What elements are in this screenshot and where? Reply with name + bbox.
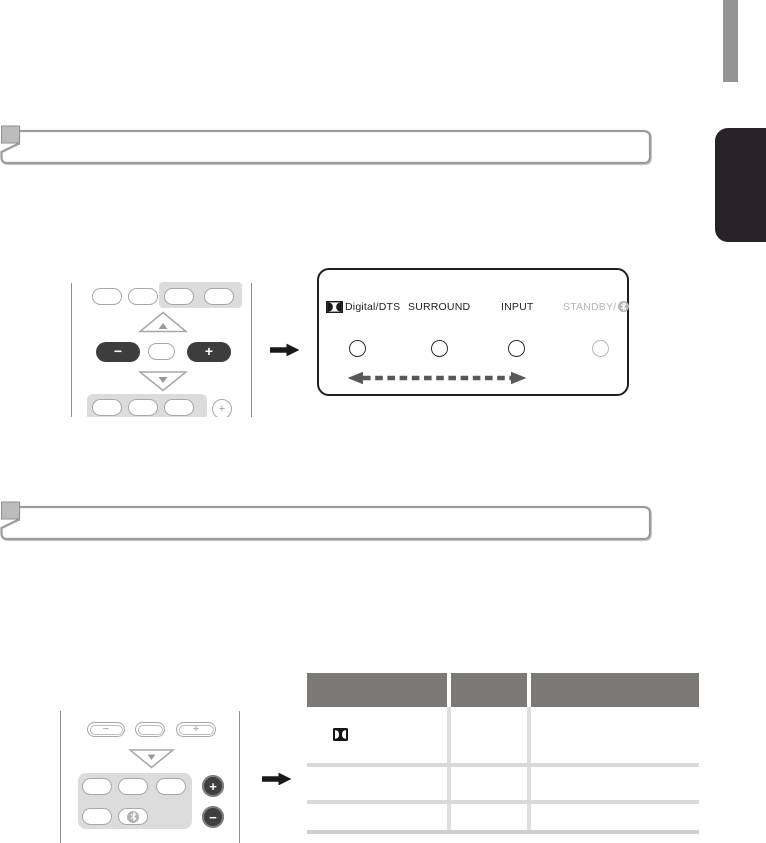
minus-label: − bbox=[114, 343, 122, 359]
down-arrow-button-icon bbox=[138, 371, 188, 392]
remote-left-edge bbox=[60, 711, 61, 843]
left-right-dashed-arrow-icon bbox=[347, 370, 527, 386]
remote-button bbox=[164, 399, 194, 416]
right-arrow-icon bbox=[270, 343, 300, 357]
bluetooth-icon bbox=[127, 811, 139, 823]
note-callout-banner-2 bbox=[0, 500, 654, 542]
remote-button bbox=[148, 343, 175, 360]
note-square-icon bbox=[2, 502, 20, 519]
remote-button bbox=[92, 399, 122, 416]
table-header-cell-3 bbox=[531, 673, 699, 707]
plus-button: + bbox=[176, 722, 216, 737]
surround-label: SURROUND bbox=[408, 300, 470, 313]
table-bottom-border bbox=[307, 830, 699, 834]
note-callout-shape bbox=[0, 500, 654, 542]
remote-button bbox=[82, 778, 112, 795]
remote-button bbox=[135, 722, 165, 737]
page-edge-gray-bar bbox=[723, 0, 738, 82]
dolby-digital-dts-text: Digital/DTS bbox=[345, 301, 400, 313]
remote-control-top-illustration: − + + bbox=[60, 281, 255, 417]
remote-button bbox=[128, 288, 158, 305]
input-text: INPUT bbox=[501, 301, 534, 313]
volume-plus-label: + bbox=[209, 779, 217, 794]
surround-led bbox=[431, 340, 448, 357]
volume-minus-button: − bbox=[202, 806, 224, 828]
table-column-divider bbox=[527, 707, 531, 833]
standby-text: STANDBY/ bbox=[563, 301, 616, 313]
remote-control-bottom-illustration: − + + − bbox=[60, 711, 241, 843]
remote-button bbox=[128, 399, 158, 416]
plus-label: + bbox=[205, 343, 213, 359]
remote-right-edge bbox=[251, 283, 252, 417]
minus-label: − bbox=[90, 725, 123, 735]
bluetooth-button bbox=[118, 808, 148, 825]
note-callout-banner-1 bbox=[0, 124, 654, 166]
dolby-digital-icon bbox=[333, 728, 348, 741]
page-edge-black-tab bbox=[715, 128, 766, 242]
table-row-divider bbox=[307, 800, 699, 804]
remote-button bbox=[118, 778, 148, 795]
dolby-digital-dts-led bbox=[349, 340, 366, 357]
table-row-divider bbox=[307, 763, 699, 767]
dolby-digital-dts-label: Digital/DTS bbox=[326, 300, 400, 313]
remote-button bbox=[204, 288, 234, 305]
volume-plus-button: + bbox=[202, 775, 224, 797]
right-arrow-icon bbox=[262, 772, 292, 786]
remote-button bbox=[82, 808, 112, 825]
remote-button bbox=[164, 288, 194, 305]
table-column-divider bbox=[447, 707, 451, 833]
minus-button: − bbox=[87, 722, 125, 737]
standby-label: STANDBY/ bbox=[563, 300, 629, 313]
manual-page: − + + Digital/DTS SURROUND INPUT STANDBY… bbox=[0, 0, 766, 843]
remote-button bbox=[156, 778, 186, 795]
standby-bluetooth-led bbox=[592, 340, 609, 357]
surround-text: SURROUND bbox=[408, 301, 470, 313]
remote-button bbox=[92, 288, 122, 305]
note-callout-shape bbox=[0, 124, 654, 166]
up-arrow-button-icon bbox=[138, 311, 188, 333]
table-header-cell-2 bbox=[451, 673, 527, 707]
volume-minus-label: − bbox=[209, 810, 217, 825]
plus-button: + bbox=[187, 342, 231, 362]
remote-left-edge bbox=[71, 283, 72, 417]
dolby-digital-icon bbox=[326, 301, 343, 313]
minus-button: − bbox=[96, 342, 140, 362]
down-arrow-button-icon bbox=[128, 749, 175, 769]
small-plus-label: + bbox=[219, 403, 225, 415]
remote-right-edge bbox=[239, 711, 240, 843]
bluetooth-icon bbox=[618, 301, 629, 312]
small-plus-button: + bbox=[212, 399, 232, 417]
input-label: INPUT bbox=[501, 300, 534, 313]
plus-label: + bbox=[179, 725, 214, 735]
table-header-cell-1 bbox=[307, 673, 447, 707]
note-square-icon bbox=[2, 126, 20, 143]
input-led bbox=[508, 340, 525, 357]
